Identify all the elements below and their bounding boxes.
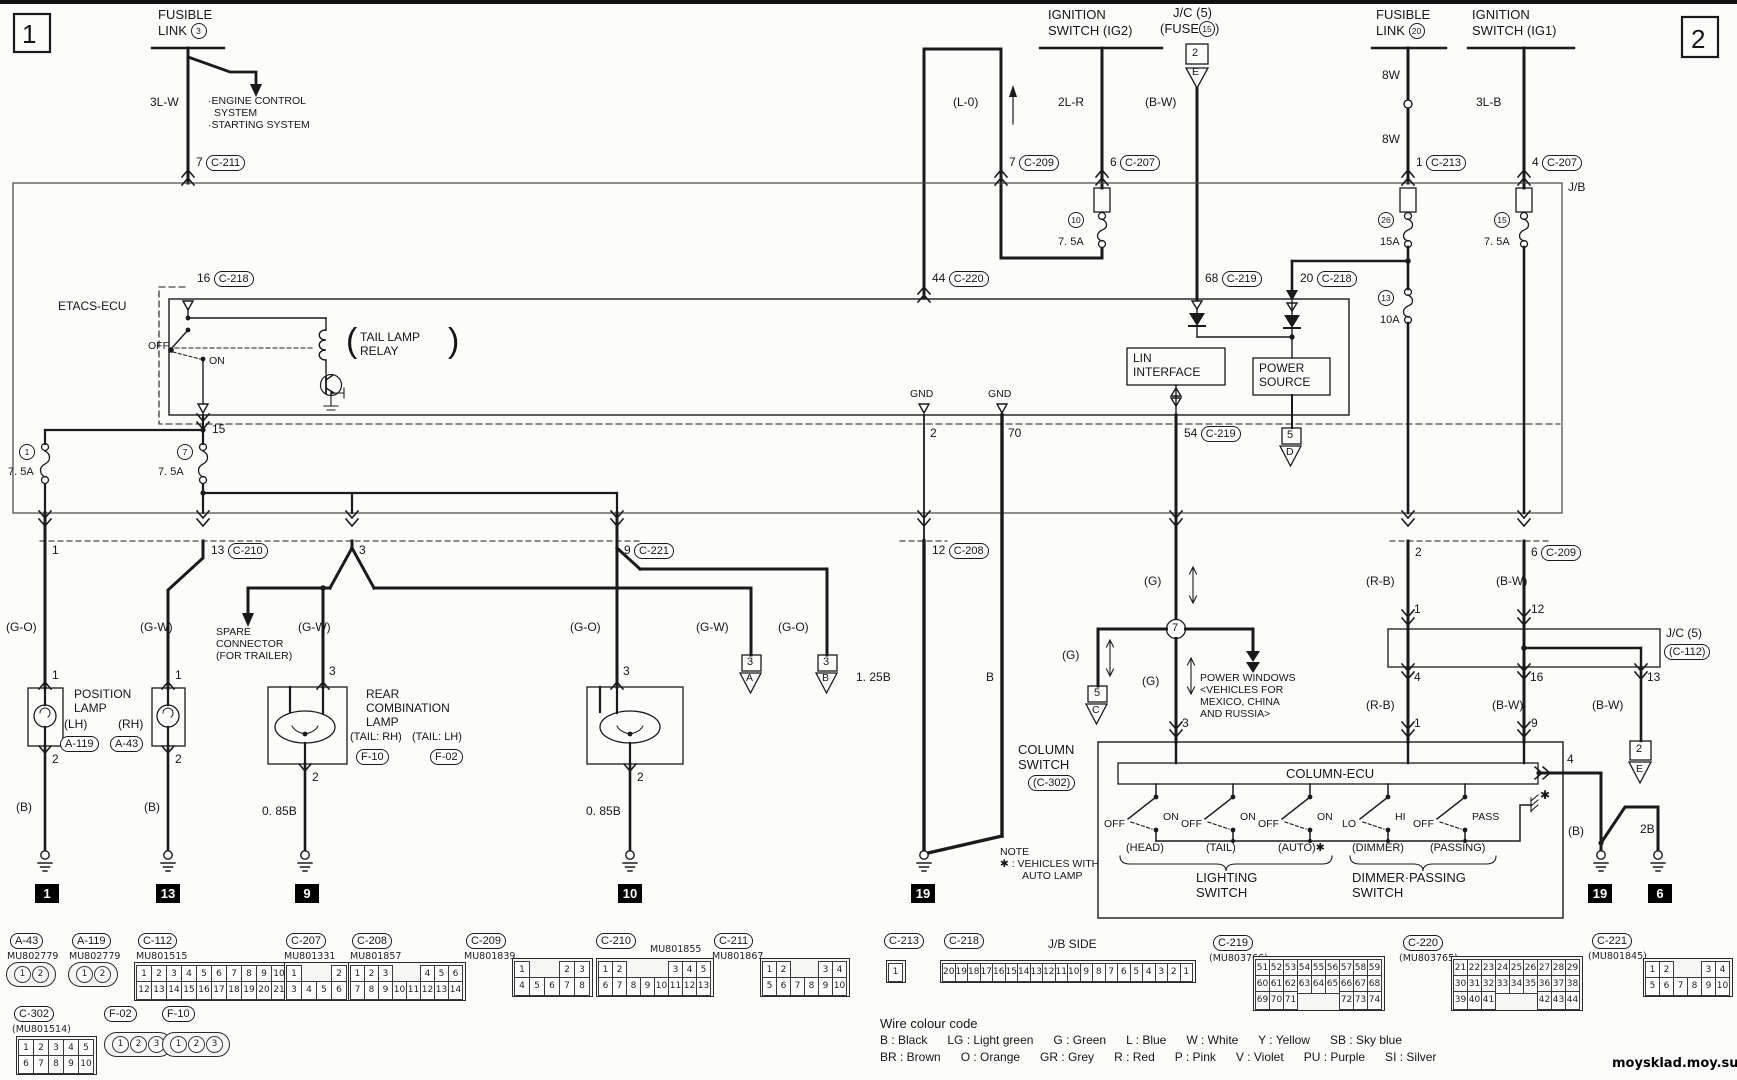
pin-row: 3456	[287, 981, 347, 998]
connector-c112-pins: 1234567891011 1213141516171819202122	[134, 962, 305, 1001]
lin-interface-label2: INTERFACE	[1133, 365, 1200, 379]
pin-cell: 12	[420, 981, 435, 1000]
pin-44-c220: 44 C-220	[932, 271, 989, 287]
connector-ref: C-209	[466, 933, 506, 949]
circled-number: 1	[19, 444, 35, 460]
rear-comb-label: REAR	[366, 687, 399, 701]
circled-number: 15	[1494, 212, 1510, 228]
etacs-relay	[168, 301, 344, 413]
pin-cell: 8	[804, 977, 819, 996]
connector-ref: C-219	[1222, 271, 1262, 287]
pin-number: 44	[932, 271, 945, 285]
part-number: MU801331	[284, 951, 335, 962]
wire-085b-rh: 0. 85B	[262, 804, 297, 818]
fusible-link-20-title: FUSIBLE	[1376, 7, 1430, 23]
pin-cell: 12	[136, 981, 152, 1000]
connector-ref: C-112	[138, 933, 177, 949]
pin-cell: 8	[1687, 977, 1702, 996]
pin-12-c208: 12 C-208	[932, 543, 989, 559]
connector-c219-pins: 515253545556575859 606162636465666768 69…	[1253, 956, 1385, 1011]
connector-c208-pins: 123456 7891011121314	[348, 962, 466, 1001]
pin-cell: 13	[696, 977, 711, 996]
lh-pin-2: 2	[52, 752, 59, 766]
pin-cell: 1	[76, 966, 93, 983]
pin-cell: 2	[130, 1036, 147, 1053]
pin-cell: 13	[151, 981, 167, 1000]
wire-g-2: (G)	[1062, 648, 1079, 662]
pin-cell: 15	[1005, 963, 1019, 982]
wire-go-1: (G-O)	[6, 620, 37, 634]
power-source-label2: SOURCE	[1259, 375, 1310, 389]
asterisk-mark: ✱	[1540, 788, 1550, 802]
relay-on-label: ON	[209, 355, 225, 368]
connector-ref: C-219	[1201, 426, 1241, 442]
pin-cell: 43	[1551, 991, 1566, 1010]
connector-ref: A-43	[10, 933, 43, 949]
circled-number: 7	[177, 444, 193, 460]
wire-go-2: (G-O)	[570, 620, 601, 634]
connector-ref: C-213	[1426, 155, 1466, 171]
pin-7-c211: 7 C-211	[196, 155, 245, 171]
pin-cell: 10	[392, 981, 407, 1000]
sw2-name: (TAIL)	[1206, 842, 1236, 855]
wire-085b-lh: 0. 85B	[586, 804, 621, 818]
pin-cell: 2	[1167, 963, 1181, 982]
pin-cell: 11	[668, 977, 683, 996]
connector-ref: F-02	[104, 1006, 137, 1022]
lamp-circuit-wires	[45, 513, 827, 688]
connector-ref: C-219	[1213, 935, 1253, 951]
wire-rb-1: (R-B)	[1366, 574, 1395, 588]
wire-label-8w-b: 8W	[1382, 132, 1400, 146]
pin-row: 123	[111, 1036, 165, 1053]
part-number: (MU803765)	[1399, 953, 1458, 964]
pin-cell: 14	[166, 981, 182, 1000]
ref-5d-number: 5	[1287, 429, 1293, 442]
pin-cell: 7	[612, 977, 627, 996]
lighting-switch-label2: SWITCH	[1196, 885, 1247, 901]
connector-label-c210: C-210	[596, 933, 636, 949]
pin-cell: 73	[1353, 991, 1368, 1010]
connector-ref: C-302	[14, 1006, 54, 1022]
pin-3-split: 3	[359, 543, 366, 557]
pin-cell: 14	[448, 981, 463, 1000]
position-lamp-lh: (LH)	[64, 717, 87, 731]
pin-cell: 18	[226, 981, 242, 1000]
pin-cell: 10	[1067, 963, 1081, 982]
fuse-7-amp: 7. 5A	[158, 466, 184, 479]
pin-cell: 71	[1283, 991, 1298, 1010]
ignition-ig2-title2: SWITCH (IG2)	[1048, 23, 1133, 39]
pin-cell: 42	[1537, 991, 1552, 1010]
part-number: MU801515	[136, 951, 187, 962]
tail-lh-label: (TAIL: LH)	[412, 731, 462, 744]
ignition-ig1-title: IGNITION	[1472, 7, 1530, 23]
pin-70-gnd: 70	[1008, 426, 1021, 440]
pin-cell: 6	[331, 981, 347, 1000]
connector-c210-pins: 12345 678910111213	[596, 958, 714, 997]
fuse-26-amp: 15A	[1380, 236, 1400, 249]
pin-row: 12345	[19, 1039, 94, 1056]
sw2-off: OFF	[1181, 818, 1202, 831]
ref-2-top: 2	[1192, 47, 1198, 60]
connector-ref: C-220	[1403, 935, 1443, 951]
dest-system: SYSTEM	[214, 107, 257, 120]
jb-side-label: J/B SIDE	[1048, 937, 1097, 951]
pin-number: 16	[197, 271, 210, 285]
pin-cell: 20	[942, 963, 956, 982]
connector-c213-pins: 1	[886, 960, 906, 983]
pin-row: 12	[287, 965, 347, 982]
wire-b-lh: (B)	[16, 800, 32, 814]
pin-cell: 5	[762, 977, 777, 996]
connector-ref: C-207	[1120, 155, 1160, 171]
jb-fuses	[41, 188, 1533, 484]
pin-cell: 8	[364, 981, 379, 1000]
connector-ref: C-210	[596, 933, 636, 949]
pin-cell: 13	[1030, 963, 1044, 982]
pin-row: 697071727374	[1256, 991, 1382, 1008]
ground-ref-10: 10	[618, 884, 642, 903]
jc-pin-12-top: 12	[1531, 602, 1544, 616]
ref-e-top: E	[1192, 66, 1199, 79]
wire-label-8w-a: 8W	[1382, 68, 1400, 82]
wire-rb-2: (R-B)	[1366, 698, 1395, 712]
circled-number: 3	[191, 23, 207, 39]
jc-pin-1-top: 1	[1414, 602, 1421, 616]
cs-pin-4-out: 4	[1567, 752, 1574, 766]
pin-1-c213: 1 C-213	[1416, 155, 1466, 171]
fusible-link-3-title: FUSIBLE	[158, 7, 212, 23]
part-number: MU801839	[464, 951, 515, 962]
pin-cell: 18	[967, 963, 981, 982]
fusible-link-20-title2: LINK 20	[1376, 23, 1425, 39]
pin-number: 54	[1184, 426, 1197, 440]
pin-cell: 1	[888, 963, 903, 982]
pin-68-c219: 68 C-219	[1205, 271, 1262, 287]
sw1-name: (HEAD)	[1126, 842, 1164, 855]
page-marker-2: 2	[1691, 24, 1705, 55]
pin-number: 7	[1009, 155, 1016, 169]
pin-row: 606162636465666768	[1256, 975, 1382, 992]
rear-combination-lamps	[268, 682, 683, 764]
cs-pin-3: 3	[1182, 716, 1189, 730]
pin-cell: 7	[350, 981, 365, 1000]
connector-ref: C-221	[1592, 933, 1632, 949]
sw4-name: (DIMMER)	[1352, 842, 1404, 855]
pin-cell: 7	[559, 977, 575, 996]
pin-cell: 8	[1092, 963, 1106, 982]
sw4-lo: LO	[1342, 818, 1356, 831]
connector-c302-pins: 12345 678910	[16, 1036, 97, 1075]
pin-cell: 6	[598, 977, 613, 996]
wire-label-l0: (L-0)	[953, 95, 978, 109]
wire-g-3: (G)	[1142, 674, 1159, 688]
label-text: LINK	[1376, 23, 1405, 38]
wire-bw-1: (B-W)	[1496, 574, 1527, 588]
ref-3b-letter: B	[822, 672, 829, 685]
wire-bw-3: (B-W)	[1592, 698, 1623, 712]
pin-cell: 9	[640, 977, 655, 996]
connector-ref: C-209	[1019, 155, 1059, 171]
wire-125b: 1. 25B	[856, 670, 891, 684]
jc-pin-16-bot: 16	[1530, 670, 1543, 684]
connector-ref: F-02	[430, 749, 463, 765]
jb-label: J/B	[1568, 180, 1585, 194]
pin-cell: 15	[181, 981, 197, 1000]
column-switch-title: COLUMN	[1018, 742, 1074, 758]
pin-cell: 1	[14, 966, 31, 983]
pin-row: 123	[515, 961, 590, 978]
page-marker-1: 1	[22, 19, 36, 50]
pin-16-c218: 16 C-218	[197, 271, 254, 287]
tail-lamp-relay-label2: RELAY	[360, 344, 398, 358]
pin-row: 515253545556575859	[1256, 959, 1382, 976]
fuse-10-amp: 7. 5A	[1058, 236, 1084, 249]
connector-ref: C-208	[949, 543, 989, 559]
pin-row: 678910111213	[599, 977, 711, 994]
cs-pin-9: 9	[1531, 716, 1538, 730]
pin-cell: 10	[654, 977, 669, 996]
spare-connector-label3: (FOR TRAILER)	[216, 650, 292, 663]
rh-pin-1: 1	[175, 668, 182, 682]
pin-9-c221: 9 C-221	[624, 543, 674, 559]
gnd-label-2: GND	[988, 388, 1011, 401]
spare-connector-label: SPARE	[216, 626, 251, 639]
column-ecu-label: COLUMN-ECU	[1286, 766, 1374, 782]
pin-13-c210: 13 C-210	[211, 543, 268, 559]
connector-ref: A-43	[110, 736, 143, 752]
pin-number: 68	[1205, 271, 1218, 285]
sw5-pass: PASS	[1472, 811, 1499, 824]
pin-row: 123	[169, 1036, 223, 1053]
connector-ref: C-218	[944, 933, 984, 949]
pin-cell: 4	[301, 981, 317, 1000]
pin-cell: 4	[1142, 963, 1156, 982]
connector-c302-ref: (C-302)	[1028, 775, 1075, 791]
power-windows-label3: MEXICO, CHINA	[1200, 696, 1280, 709]
pin-number: 6	[1531, 545, 1538, 559]
connector-label-c207: C-207	[286, 933, 326, 949]
dest-engine-control: ·ENGINE CONTROL	[208, 95, 306, 108]
fusible-link-3-title2: LINK 3	[158, 23, 207, 39]
pin-cell: 17	[211, 981, 227, 1000]
pin-cell: 12	[1042, 963, 1056, 982]
connector-ref: C-213	[884, 933, 924, 949]
ref-5c-number: 5	[1094, 687, 1100, 700]
ignition-ig1-title2: SWITCH (IG1)	[1472, 23, 1557, 39]
wire-b-rh: (B)	[144, 800, 160, 814]
part-number: MU802779	[7, 951, 58, 962]
connector-ref: C-211	[714, 933, 753, 949]
connector-c218-pins: 2019181716151413121110987654321	[940, 960, 1196, 983]
sw3-off: OFF	[1258, 818, 1279, 831]
connector-label-c302: C-302	[14, 1006, 54, 1022]
pin-row: 5678910	[763, 977, 847, 994]
pin-cell: 7	[1673, 977, 1688, 996]
pin-2-jb: 2	[1415, 545, 1422, 559]
pin-number: 9	[624, 543, 631, 557]
fuse-10: 10	[1068, 212, 1084, 228]
tail-lamp-relay-label: TAIL LAMP	[360, 330, 420, 344]
pin-cell: 13	[434, 981, 449, 1000]
pin-cell: 6	[1659, 977, 1674, 996]
wire-gw-1: (G-W)	[140, 620, 173, 634]
pin-cell: 2	[188, 1036, 205, 1053]
wire-colour-code-line2: BR : Brown O : Orange GR : Grey R : Red …	[880, 1050, 1436, 1064]
lighting-switch-label: LIGHTING	[1196, 870, 1257, 886]
ref-2e-number: 2	[1636, 743, 1642, 756]
column-switch-title2: SWITCH	[1018, 757, 1069, 773]
ground-ref-1: 1	[35, 884, 59, 903]
pin-cell: 11	[1055, 963, 1069, 982]
jc5-title2: (FUSE15)	[1160, 21, 1219, 37]
fuse-15-amp: 7. 5A	[1484, 236, 1510, 249]
part-number: MU801857	[350, 951, 401, 962]
wire-label-bw-top: (B-W)	[1145, 95, 1176, 109]
pin-cell: 72	[1339, 991, 1354, 1010]
pin-row: 1234	[763, 961, 847, 978]
pin-6-c207: 6 C-207	[1110, 155, 1160, 171]
sw5-off: OFF	[1413, 818, 1434, 831]
connector-label-c221: C-221	[1592, 933, 1632, 949]
f10-pin-3: 3	[329, 664, 336, 678]
pin-cell: 6	[544, 977, 560, 996]
pin-2-gnd: 2	[930, 426, 937, 440]
pin-cell: 70	[1269, 991, 1284, 1010]
connector-ref: C-218	[214, 271, 254, 287]
power-windows-label: POWER WINDOWS	[1200, 672, 1296, 685]
pin-cell: 5	[316, 981, 332, 1000]
pin-number: 13	[211, 543, 224, 557]
part-number: (MU801514)	[12, 1024, 71, 1035]
dest-starting-system: ·STARTING SYSTEM	[208, 119, 310, 132]
wire-gw-3: (G-W)	[696, 620, 729, 634]
pin-4-c207: 4 C-207	[1532, 155, 1582, 171]
sw2-on: ON	[1240, 811, 1256, 824]
f10-pin-2: 2	[312, 770, 319, 784]
pin-cell: 19	[241, 981, 257, 1000]
fuse-13: 13	[1378, 290, 1394, 306]
connector-ref: A-119	[60, 736, 99, 752]
wire-gw-2: (G-W)	[298, 620, 331, 634]
pin-cell: 6	[1117, 963, 1131, 982]
lh-pin-1: 1	[52, 668, 59, 682]
pin-number: 20	[1300, 271, 1313, 285]
ref-5c-letter: C	[1092, 704, 1100, 717]
pin-row: 678910	[19, 1055, 94, 1072]
ref-2e-letter: E	[1636, 763, 1643, 776]
f02-pin-2: 2	[637, 770, 644, 784]
connector-a119-pins: 12	[68, 962, 118, 987]
connector-label-c220: C-220	[1403, 935, 1443, 951]
ground-ref-6: 6	[1648, 884, 1672, 903]
wire-colour-code-line1: B : Black LG : Light green G : Green L :…	[880, 1033, 1402, 1047]
circled-number: 10	[1068, 212, 1084, 228]
sw1-off: OFF	[1104, 818, 1125, 831]
pin-row: 303132333435363738	[1454, 975, 1580, 992]
label-text: )	[1215, 21, 1219, 36]
connector-label-a43: A-43	[10, 933, 43, 949]
circled-number: 20	[1409, 23, 1425, 39]
pin-7-c209: 7 C-209	[1009, 155, 1059, 171]
connector-ref: C-220	[949, 271, 989, 287]
connector-ref: C-209	[1541, 545, 1581, 561]
fuse-7: 7	[177, 444, 193, 460]
ref-5d-letter: D	[1286, 446, 1294, 459]
connector-c221-pins: 1234 5678910	[1643, 958, 1733, 997]
pin-cell: 1	[112, 1036, 129, 1053]
dimmer-passing-label2: SWITCH	[1352, 885, 1403, 901]
pin-6-c209: 6 C-209	[1531, 545, 1581, 561]
wire-label-2lr: 2L-R	[1058, 95, 1084, 109]
pin-cell: 2	[32, 966, 49, 983]
pin-cell: 4	[514, 977, 530, 996]
pin-cell: 1	[1180, 963, 1194, 982]
sw1-on: ON	[1163, 811, 1179, 824]
pin-cell: 74	[1367, 991, 1382, 1010]
fuse-15: 15	[1494, 212, 1510, 228]
pin-cell: 9	[378, 981, 393, 1000]
spare-connector-label2: CONNECTOR	[216, 638, 283, 651]
connector-ref: A-119	[72, 933, 111, 949]
note-line1: ✱ : VEHICLES WITH	[1000, 858, 1099, 871]
connector-label-c112: C-112	[138, 933, 177, 949]
part-number: MU802779	[69, 951, 120, 962]
circled-number: 26	[1378, 212, 1394, 228]
label-text: FUSIBLE	[158, 7, 212, 22]
connector-label-c213: C-213	[884, 933, 924, 949]
ignition-ig2-title: IGNITION	[1048, 7, 1106, 23]
sw5-name: (PASSING)	[1430, 842, 1485, 855]
relay-paren-left: (	[346, 324, 357, 358]
pin-row: 212223242526272829	[1454, 959, 1580, 976]
connector-a43-pins: 12	[6, 962, 56, 987]
connector-ref: C-210	[228, 543, 268, 559]
connector-c220-pins: 212223242526272829 303132333435363738 39…	[1451, 956, 1583, 1011]
label-text: (FUSE	[1160, 21, 1199, 36]
pin-cell: 9	[1701, 977, 1716, 996]
ground-ref-19b: 19	[1588, 884, 1612, 903]
ref-3a-letter: A	[746, 672, 753, 685]
pin-row: 1213141516171819202122	[137, 981, 302, 998]
pin-row: 1234567891011	[137, 965, 302, 982]
pin-row: 2019181716151413121110987654321	[943, 963, 1193, 980]
f02-pin-3: 3	[623, 664, 630, 678]
pin-row: 12	[13, 966, 49, 983]
jc5-c112-label: J/C (5)	[1666, 626, 1702, 640]
part-number: MU801855	[650, 944, 701, 955]
connector-label-f10: F-10	[162, 1006, 195, 1022]
connector-ref: C-221	[634, 543, 674, 559]
pin-cell: 8	[48, 1055, 64, 1074]
fuse-1-amp: 7. 5A	[8, 466, 34, 479]
pin-cell: 10	[78, 1055, 94, 1074]
wiring-diagram-page: 1 2 FUSIBLE LINK 3 3L-W ·ENGINE CONTROL …	[0, 0, 1737, 1080]
pin-cell: 11	[406, 981, 421, 1000]
pin-1-lamp: 1	[52, 543, 59, 557]
pin-cell: 7	[33, 1055, 49, 1074]
wire-bw-2: (B-W)	[1492, 698, 1523, 712]
pin-row: 394041424344	[1454, 991, 1580, 1008]
connector-f02: F-02	[430, 749, 463, 765]
pin-row: 12	[75, 966, 111, 983]
wire-colour-code-title: Wire colour code	[880, 1016, 978, 1032]
connector-label-c208: C-208	[352, 933, 392, 949]
pin-cell: 12	[682, 977, 697, 996]
wire-g-1: (G)	[1144, 574, 1161, 588]
pin-cell: 44	[1565, 991, 1580, 1010]
